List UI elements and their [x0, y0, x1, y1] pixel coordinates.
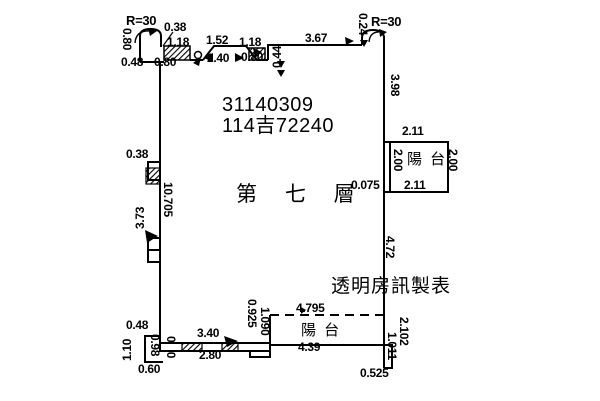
bottom-wall	[160, 343, 270, 351]
arrow-markers	[145, 28, 387, 347]
window-symbol	[164, 46, 190, 60]
window-symbol	[146, 168, 160, 184]
wall-outline	[140, 29, 392, 368]
floor-plan-page: R=30 0.38 1.18 1.52 1.18 3.67 0.24 R=30 …	[0, 0, 600, 401]
window-symbol	[182, 343, 202, 351]
floor-plan-drawing	[0, 0, 600, 401]
balcony-right-outline	[390, 142, 448, 192]
